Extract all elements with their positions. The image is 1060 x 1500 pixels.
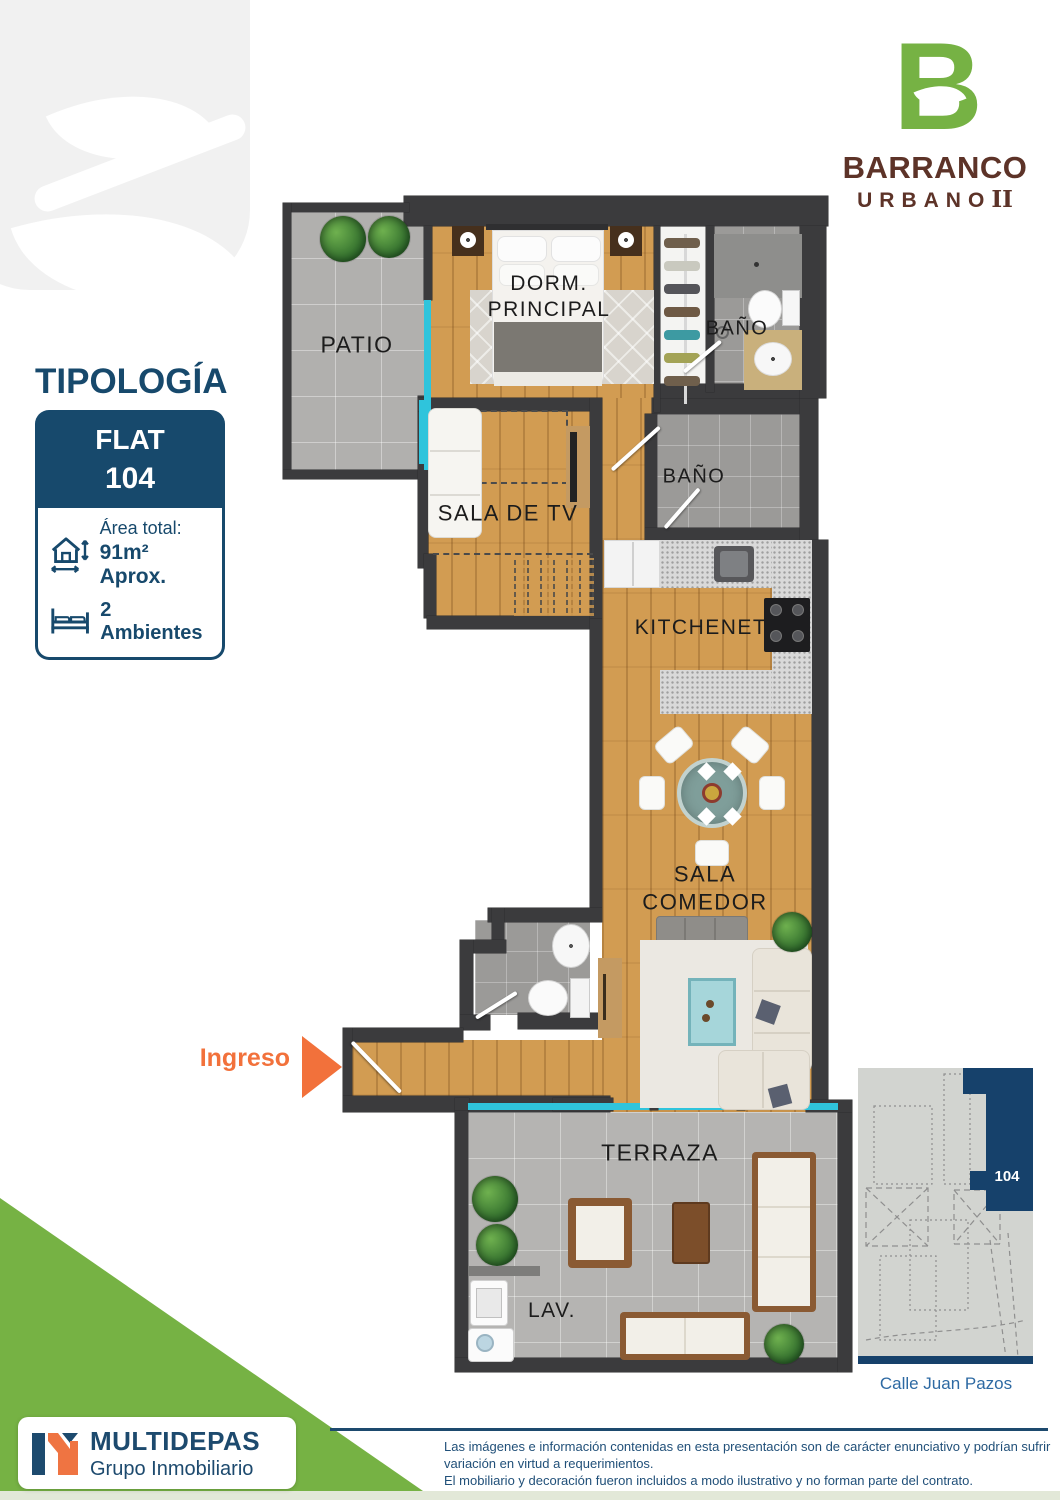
coffee-table xyxy=(688,978,736,1046)
l-sofa-horizontal xyxy=(718,1050,810,1110)
label-sala-comedor: SALA COMEDOR xyxy=(642,861,767,916)
closet-hangers xyxy=(664,307,700,317)
developer-card: MULTIDEPAS Grupo Inmobiliario xyxy=(18,1417,296,1489)
cabinet-seam xyxy=(632,542,634,586)
typology-card-header: FLAT 104 xyxy=(35,410,225,508)
footer-bottom-strip xyxy=(0,1491,1060,1500)
sofa-seam xyxy=(762,1052,764,1108)
site-map: 104 xyxy=(858,1068,1033,1364)
sofa-seam xyxy=(430,494,480,496)
plant xyxy=(368,216,410,258)
kitchen-peninsula xyxy=(660,670,772,714)
map-unit-label: 104 xyxy=(994,1168,1020,1185)
brochure-page: B BARRANCO URBANOII TIPOLOGÍA FLAT 104 xyxy=(0,0,1060,1500)
multidepas-m-icon xyxy=(32,1430,80,1476)
armchair-cushion xyxy=(576,1206,624,1260)
label-kitchenet: KITCHENET xyxy=(635,615,768,641)
plant xyxy=(476,1224,518,1266)
table-decor xyxy=(702,1014,710,1022)
wall xyxy=(812,540,828,1112)
stove-burner xyxy=(792,630,804,642)
bed-blanket xyxy=(494,322,602,374)
toilet-bowl xyxy=(528,980,568,1016)
label-terraza: TERRAZA xyxy=(601,1139,719,1168)
bed-foot xyxy=(494,372,602,386)
label-dorm: DORM. PRINCIPAL xyxy=(488,271,611,324)
developer-tagline: Grupo Inmobiliario xyxy=(90,1458,260,1481)
sofa-seam xyxy=(684,1318,686,1354)
label-bano1: BAÑO xyxy=(706,317,769,342)
closet-hangers xyxy=(664,238,700,248)
brand-name: BARRANCO xyxy=(826,150,1044,186)
pillow xyxy=(497,236,547,262)
toilet-tank xyxy=(570,978,590,1018)
wall xyxy=(838,1112,852,1372)
area-label: Área total: xyxy=(100,518,214,539)
wall xyxy=(590,616,602,916)
laundry-shelf xyxy=(468,1266,540,1276)
wall xyxy=(706,226,714,392)
area-value: 91m² Aprox. xyxy=(100,541,214,589)
developer-name: MULTIDEPAS xyxy=(90,1426,260,1457)
closet-hangers xyxy=(664,261,700,271)
disclaimer-line: El mobiliario y decoración fueron inclui… xyxy=(444,1472,1058,1489)
label-bano2: BAÑO xyxy=(663,465,726,490)
sofa-seam xyxy=(754,1032,810,1034)
wall xyxy=(404,196,828,226)
unit-number: 104 xyxy=(35,462,225,496)
sofa-seam xyxy=(754,990,810,992)
laundry-sink-basin xyxy=(476,1288,502,1318)
dining-chair xyxy=(639,776,665,810)
washer-door xyxy=(476,1334,494,1352)
pillow xyxy=(551,236,601,262)
terrace-table xyxy=(672,1202,710,1264)
lamp xyxy=(618,232,634,248)
ingreso-label: Ingreso xyxy=(168,1044,290,1073)
shower-drain xyxy=(754,262,759,267)
ingreso-arrow-icon xyxy=(302,1036,342,1098)
wall xyxy=(654,226,660,412)
stove-burner xyxy=(792,604,804,616)
tv xyxy=(570,432,577,502)
plant xyxy=(764,1324,804,1364)
table-centerpiece xyxy=(702,783,722,803)
wall xyxy=(343,1028,463,1042)
bed-icon xyxy=(48,604,92,640)
window-line xyxy=(419,400,425,464)
disclaimer: Las imágenes e información contenidas en… xyxy=(444,1438,1058,1489)
wall xyxy=(488,908,602,922)
entry-corridor xyxy=(352,1040,602,1096)
disclaimer-line: Las imágenes e información contenidas en… xyxy=(444,1438,1058,1455)
typology-heading: TIPOLOGÍA xyxy=(35,362,228,402)
label-lav: LAV. xyxy=(528,1298,576,1324)
sofa-cushion xyxy=(758,1158,810,1306)
console-handle xyxy=(603,974,606,1020)
wall xyxy=(283,203,291,479)
unit-type: FLAT xyxy=(35,424,225,456)
street-label: Calle Juan Pazos xyxy=(846,1374,1046,1394)
ambientes-value: 2 Ambientes xyxy=(100,599,214,645)
console-table xyxy=(598,958,622,1038)
table-decor xyxy=(706,1000,714,1008)
closet-hangers xyxy=(664,284,700,294)
disclaimer-line: variación en virtud a requerimientos. xyxy=(444,1455,1058,1472)
label-patio: PATIO xyxy=(320,331,393,360)
footer-divider-line xyxy=(330,1428,1048,1431)
kitchen-sink-basin xyxy=(720,551,748,577)
wall xyxy=(424,554,436,618)
wall xyxy=(283,203,409,212)
plant xyxy=(772,912,812,952)
sink-basin xyxy=(754,342,792,376)
ambientes-row: 2 Ambientes xyxy=(48,599,214,645)
wall xyxy=(800,398,818,540)
stove-burner xyxy=(770,630,782,642)
sofa-seam xyxy=(758,1256,810,1258)
lamp xyxy=(460,232,476,248)
stairs-projection xyxy=(514,558,594,616)
typology-card: FLAT 104 Área total: 91m² Aprox. xyxy=(35,410,225,660)
wall xyxy=(645,528,818,540)
sofa-seam xyxy=(758,1206,810,1208)
wall xyxy=(455,1108,468,1372)
toilet-tank xyxy=(782,290,800,326)
pedestal-sink xyxy=(552,924,590,968)
wall xyxy=(455,1098,469,1110)
wall xyxy=(800,226,826,398)
closet-hangers xyxy=(664,330,700,340)
plant xyxy=(320,216,366,262)
wall xyxy=(424,226,432,300)
plant xyxy=(472,1176,518,1222)
dining-chair xyxy=(759,776,785,810)
area-row: Área total: 91m² Aprox. xyxy=(48,518,214,589)
stairs-dashed-line xyxy=(433,553,593,555)
stove-burner xyxy=(770,604,782,616)
brand-subname: URBANO xyxy=(857,189,991,212)
label-sala-tv: SALA DE TV xyxy=(438,499,579,527)
sofa-seam xyxy=(430,450,480,452)
brand-numeral: II xyxy=(991,186,1013,213)
wall xyxy=(283,470,426,479)
wall xyxy=(427,616,597,629)
typology-card-body: Área total: 91m² Aprox. 2 Ambientes xyxy=(35,508,225,660)
closet-hangers xyxy=(664,376,700,386)
house-measure-icon xyxy=(48,530,92,578)
wall xyxy=(652,398,810,414)
